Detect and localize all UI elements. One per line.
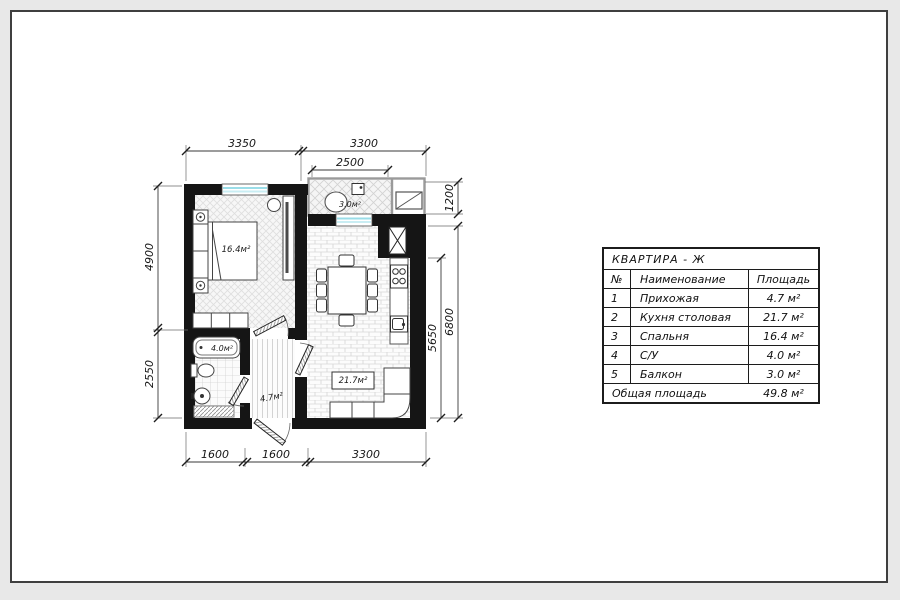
dining-table (328, 267, 366, 314)
table-title: КВАРТИРА - Ж (604, 249, 818, 269)
chair (339, 255, 354, 266)
balcony-area-label: 3.0м² (339, 200, 362, 209)
bedroom-area-label: 16.4м² (222, 245, 251, 255)
chair (368, 284, 378, 297)
row-num: 4 (604, 346, 631, 364)
kitchen-area-label: 21.7м² (339, 376, 368, 386)
dim-right-balcony: 1200 (443, 184, 456, 212)
chair (317, 299, 327, 312)
dim-bottom-3: 3300 (352, 448, 380, 461)
entry-door (254, 419, 290, 445)
table-row: 1Прихожая4.7 м² (604, 288, 818, 307)
headboard (193, 224, 208, 251)
row-area: 3.0 м² (749, 368, 818, 381)
floor-mat (194, 406, 234, 417)
column-header-name: Наименование (631, 270, 749, 288)
row-area: 4.7 м² (749, 292, 818, 305)
total-label: Общая площадь (604, 387, 749, 400)
row-num: 2 (604, 308, 631, 326)
hallway-floor (250, 339, 295, 418)
dim-right-inner: 5650 (426, 324, 439, 352)
balcony-box (352, 184, 364, 195)
row-name: С/У (631, 346, 749, 364)
dim-bottom-2: 1600 (262, 448, 290, 461)
table-row: 5Балкон3.0 м² (604, 364, 818, 383)
toilet (191, 364, 214, 377)
kitchen-sink (391, 316, 408, 332)
row-area: 21.7 м² (749, 311, 818, 324)
row-name: Балкон (631, 365, 749, 383)
table-footer: Общая площадь 49.8 м² (604, 383, 818, 402)
stool (268, 199, 281, 212)
bedroom-window (222, 184, 268, 195)
kitchen-window (336, 214, 372, 226)
column-header-num: № (604, 270, 631, 288)
row-area: 4.0 м² (749, 349, 818, 362)
chair (339, 315, 354, 326)
row-num: 3 (604, 327, 631, 345)
dim-left-upper: 4900 (143, 243, 156, 271)
row-num: 5 (604, 365, 631, 383)
dim-right-outer: 6800 (443, 308, 456, 336)
chair (368, 269, 378, 282)
cabinet-row (193, 313, 248, 328)
dim-top-right: 3300 (350, 137, 378, 150)
dim-bottom-1: 1600 (201, 448, 229, 461)
column-header-area: Площадь (749, 273, 818, 286)
bathroom-area-label: 4.0м² (211, 344, 234, 353)
table-row: 3Спальня16.4 м² (604, 326, 818, 345)
stove (391, 265, 408, 288)
chair (317, 284, 327, 297)
chair (317, 269, 327, 282)
balcony-bench (396, 192, 422, 209)
headboard (193, 251, 208, 278)
table-header: № Наименование Площадь (604, 269, 818, 288)
dim-left-lower: 2550 (143, 360, 156, 388)
row-num: 1 (604, 289, 631, 307)
row-name: Кухня столовая (631, 308, 749, 326)
total-area: 49.8 м² (749, 387, 818, 400)
chair (368, 299, 378, 312)
area-table: КВАРТИРА - Ж № Наименование Площадь 1При… (602, 247, 820, 404)
row-name: Спальня (631, 327, 749, 345)
dim-top-left: 3350 (228, 137, 256, 150)
dim-top-balcony: 2500 (336, 156, 364, 169)
vent-shaft (389, 227, 406, 254)
table-row: 4С/У4.0 м² (604, 345, 818, 364)
table-row: 2Кухня столовая21.7 м² (604, 307, 818, 326)
row-name: Прихожая (631, 289, 749, 307)
row-area: 16.4 м² (749, 330, 818, 343)
